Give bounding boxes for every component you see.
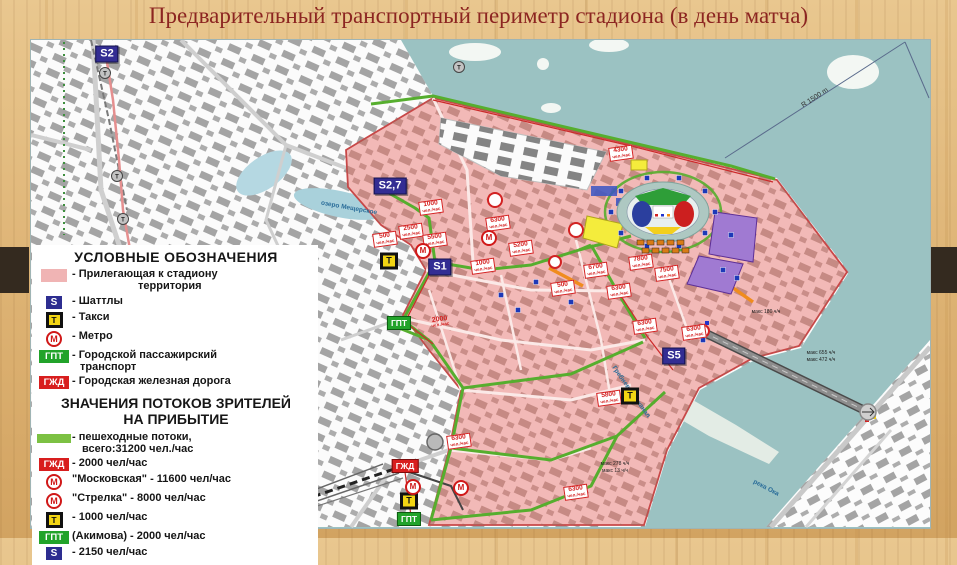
gpt-icon: ГПТ [39,350,69,363]
map-marker-metro-3: М [405,479,421,495]
area-icon [41,269,67,282]
map-annotation-5: макс 655 ч/ч [807,350,836,356]
backdrop-stripe-left [0,247,29,293]
shuttle-icon: S [46,296,62,309]
flows-title-line2: НА ПРИБЫТИЕ [123,411,228,427]
flow-label-5: 5200чел./час [508,240,534,257]
shuttle-badge: S [36,295,72,309]
legend-title: УСЛОВНЫЕ ОБОЗНАЧЕНИЯ [36,249,316,265]
metro-icon: М [46,493,62,509]
flow-label-9: 500чел./час [550,280,576,297]
legend-item-0: - Прилегающая к стадионутерритория [36,268,316,293]
flow-label-17: 6300чел./час [563,484,589,501]
flow-label-4: 6300чел./час [485,215,511,232]
map-marker-taxi-1: Т [380,253,398,270]
flow-item-label: - 2150 чел/час [72,546,147,558]
map-marker-metro-4: М [453,480,469,496]
flow-item-label: "Стрелка" - 8000 чел/час [72,492,206,504]
flow-item-2: М"Московская" - 11600 чел/час [36,473,316,490]
flow-label-15: 6300чел./час [446,433,472,450]
map-annotation-0: R 1500 m [800,87,829,109]
legend-item-4: ГПТ- Городской пассажирскийтранспорт [36,349,316,374]
flow-label-12: 6300чел./час [606,283,632,300]
map-marker-gpt-2: ГПТ [397,512,421,526]
area-badge [36,268,72,282]
flow-label-16: 5800чел./час [596,390,622,407]
flows-title: ЗНАЧЕНИЯ ПОТОКОВ ЗРИТЕЛЕЙ НА ПРИБЫТИЕ [36,396,316,427]
metro-badge: М [36,492,72,509]
metro-icon: М [46,474,62,490]
flow-label-2: 500чел./час [372,231,398,248]
flow-item-6: S- 2150 чел/час [36,546,316,560]
map-annotation-3: река Ока [752,478,780,497]
legend-item-3: М- Метро [36,330,316,347]
gzd-badge: ГЖД [36,457,72,471]
flow-label-0: 1000чел./час [418,199,444,216]
flow-item-5: ГПТ(Акимова) - 2000 чел/час [36,530,316,544]
gzd-icon: ГЖД [39,458,69,471]
shuttle-badge: S [36,546,72,560]
slide-title: Предварительный транспортный периметр ст… [0,3,957,29]
flow-badge [36,431,72,443]
legend-item-label: - Такси [72,311,110,323]
legend-item-5: ГЖД- Городская железная дорога [36,375,316,389]
map-marker-taxi-3: Т [400,493,418,510]
flow-label-14: 6300чел./час [681,324,707,341]
flow-item-label: "Московская" - 11600 чел/час [72,473,231,485]
metro-icon: М [46,331,62,347]
flow-label-6: 1000чел./час [470,258,496,275]
taxi-badge: Т [36,311,72,328]
gzd-icon: ГЖД [39,376,69,389]
map-marker-s2-7: S2,7 [374,178,407,195]
flow-label-18: 2000чел./час [428,314,452,329]
legend-items: - Прилегающая к стадионутерриторияS- Шат… [36,268,316,389]
flow-item-0: - пешеходные потоки,всего:31200 чел./час [36,431,316,456]
flow-label-11: 7500чел./час [654,265,680,282]
flow-item-label: - пешеходные потоки,всего:31200 чел./час [72,431,193,456]
flow-label-1: 2500чел./час [398,223,424,240]
map-marker-gzd-1: ГЖД [392,459,419,473]
taxi-icon: Т [46,512,63,528]
flow-items: - пешеходные потоки,всего:31200 чел./час… [36,431,316,561]
metro-badge: М [36,330,72,347]
flow-icon [37,434,71,443]
map-marker-s1: S1 [428,259,451,276]
taxi-badge: Т [36,511,72,528]
map-marker-s2: S2 [95,46,118,63]
flow-item-1: ГЖД- 2000 чел/час [36,457,316,471]
legend-panel: УСЛОВНЫЕ ОБОЗНАЧЕНИЯ - Прилегающая к ста… [32,245,318,565]
legend-item-label: - Городская железная дорога [72,375,231,387]
map-marker-metro-2: М [481,230,497,246]
flow-label-13: 6300чел./час [632,318,658,335]
gpt-badge: ГПТ [36,349,72,363]
flow-item-label: - 2000 чел/час [72,457,147,469]
slide-background: { "slide": { "title": "Предварительный т… [0,0,957,538]
flow-item-label: (Акимова) - 2000 чел/час [72,530,205,542]
map-annotation-4: макс 180 ч/ч [752,309,781,315]
flow-label-10: 7800чел./час [628,254,654,271]
legend-item-label: - Прилегающая к стадионутерритория [72,268,218,293]
shuttle-icon: S [46,547,62,560]
map-marker-taxi-2: Т [621,388,639,405]
map-annotation-7: макс 278 ч/ч [601,461,630,467]
map-annotation-6: макс 472 ч/ч [807,357,836,363]
flows-title-line1: ЗНАЧЕНИЯ ПОТОКОВ ЗРИТЕЛЕЙ [61,395,291,411]
map-marker-metro-1: М [415,243,431,259]
map-marker-gpt-1: ГПТ [387,316,411,330]
map-annotation-8: макс 13 ч/ч [602,468,628,474]
flow-label-7: 4300чел./час [608,145,634,162]
legend-item-label: - Городской пассажирскийтранспорт [72,349,217,374]
flow-item-4: Т- 1000 чел/час [36,511,316,528]
flow-item-label: - 1000 чел/час [72,511,147,523]
metro-badge: М [36,473,72,490]
map-annotation-1: озеро Мещерское [320,200,377,217]
flow-item-3: М"Стрелка" - 8000 чел/час [36,492,316,509]
map-marker-s5: S5 [662,348,685,365]
taxi-icon: Т [46,312,63,328]
flow-label-8: 6700чел./час [583,262,609,279]
backdrop-stripe-right [929,247,957,293]
gpt-badge: ГПТ [36,530,72,544]
gzd-badge: ГЖД [36,375,72,389]
legend-item-1: S- Шаттлы [36,295,316,309]
legend-item-label: - Метро [72,330,113,342]
legend-item-2: Т- Такси [36,311,316,328]
legend-item-label: - Шаттлы [72,295,123,307]
